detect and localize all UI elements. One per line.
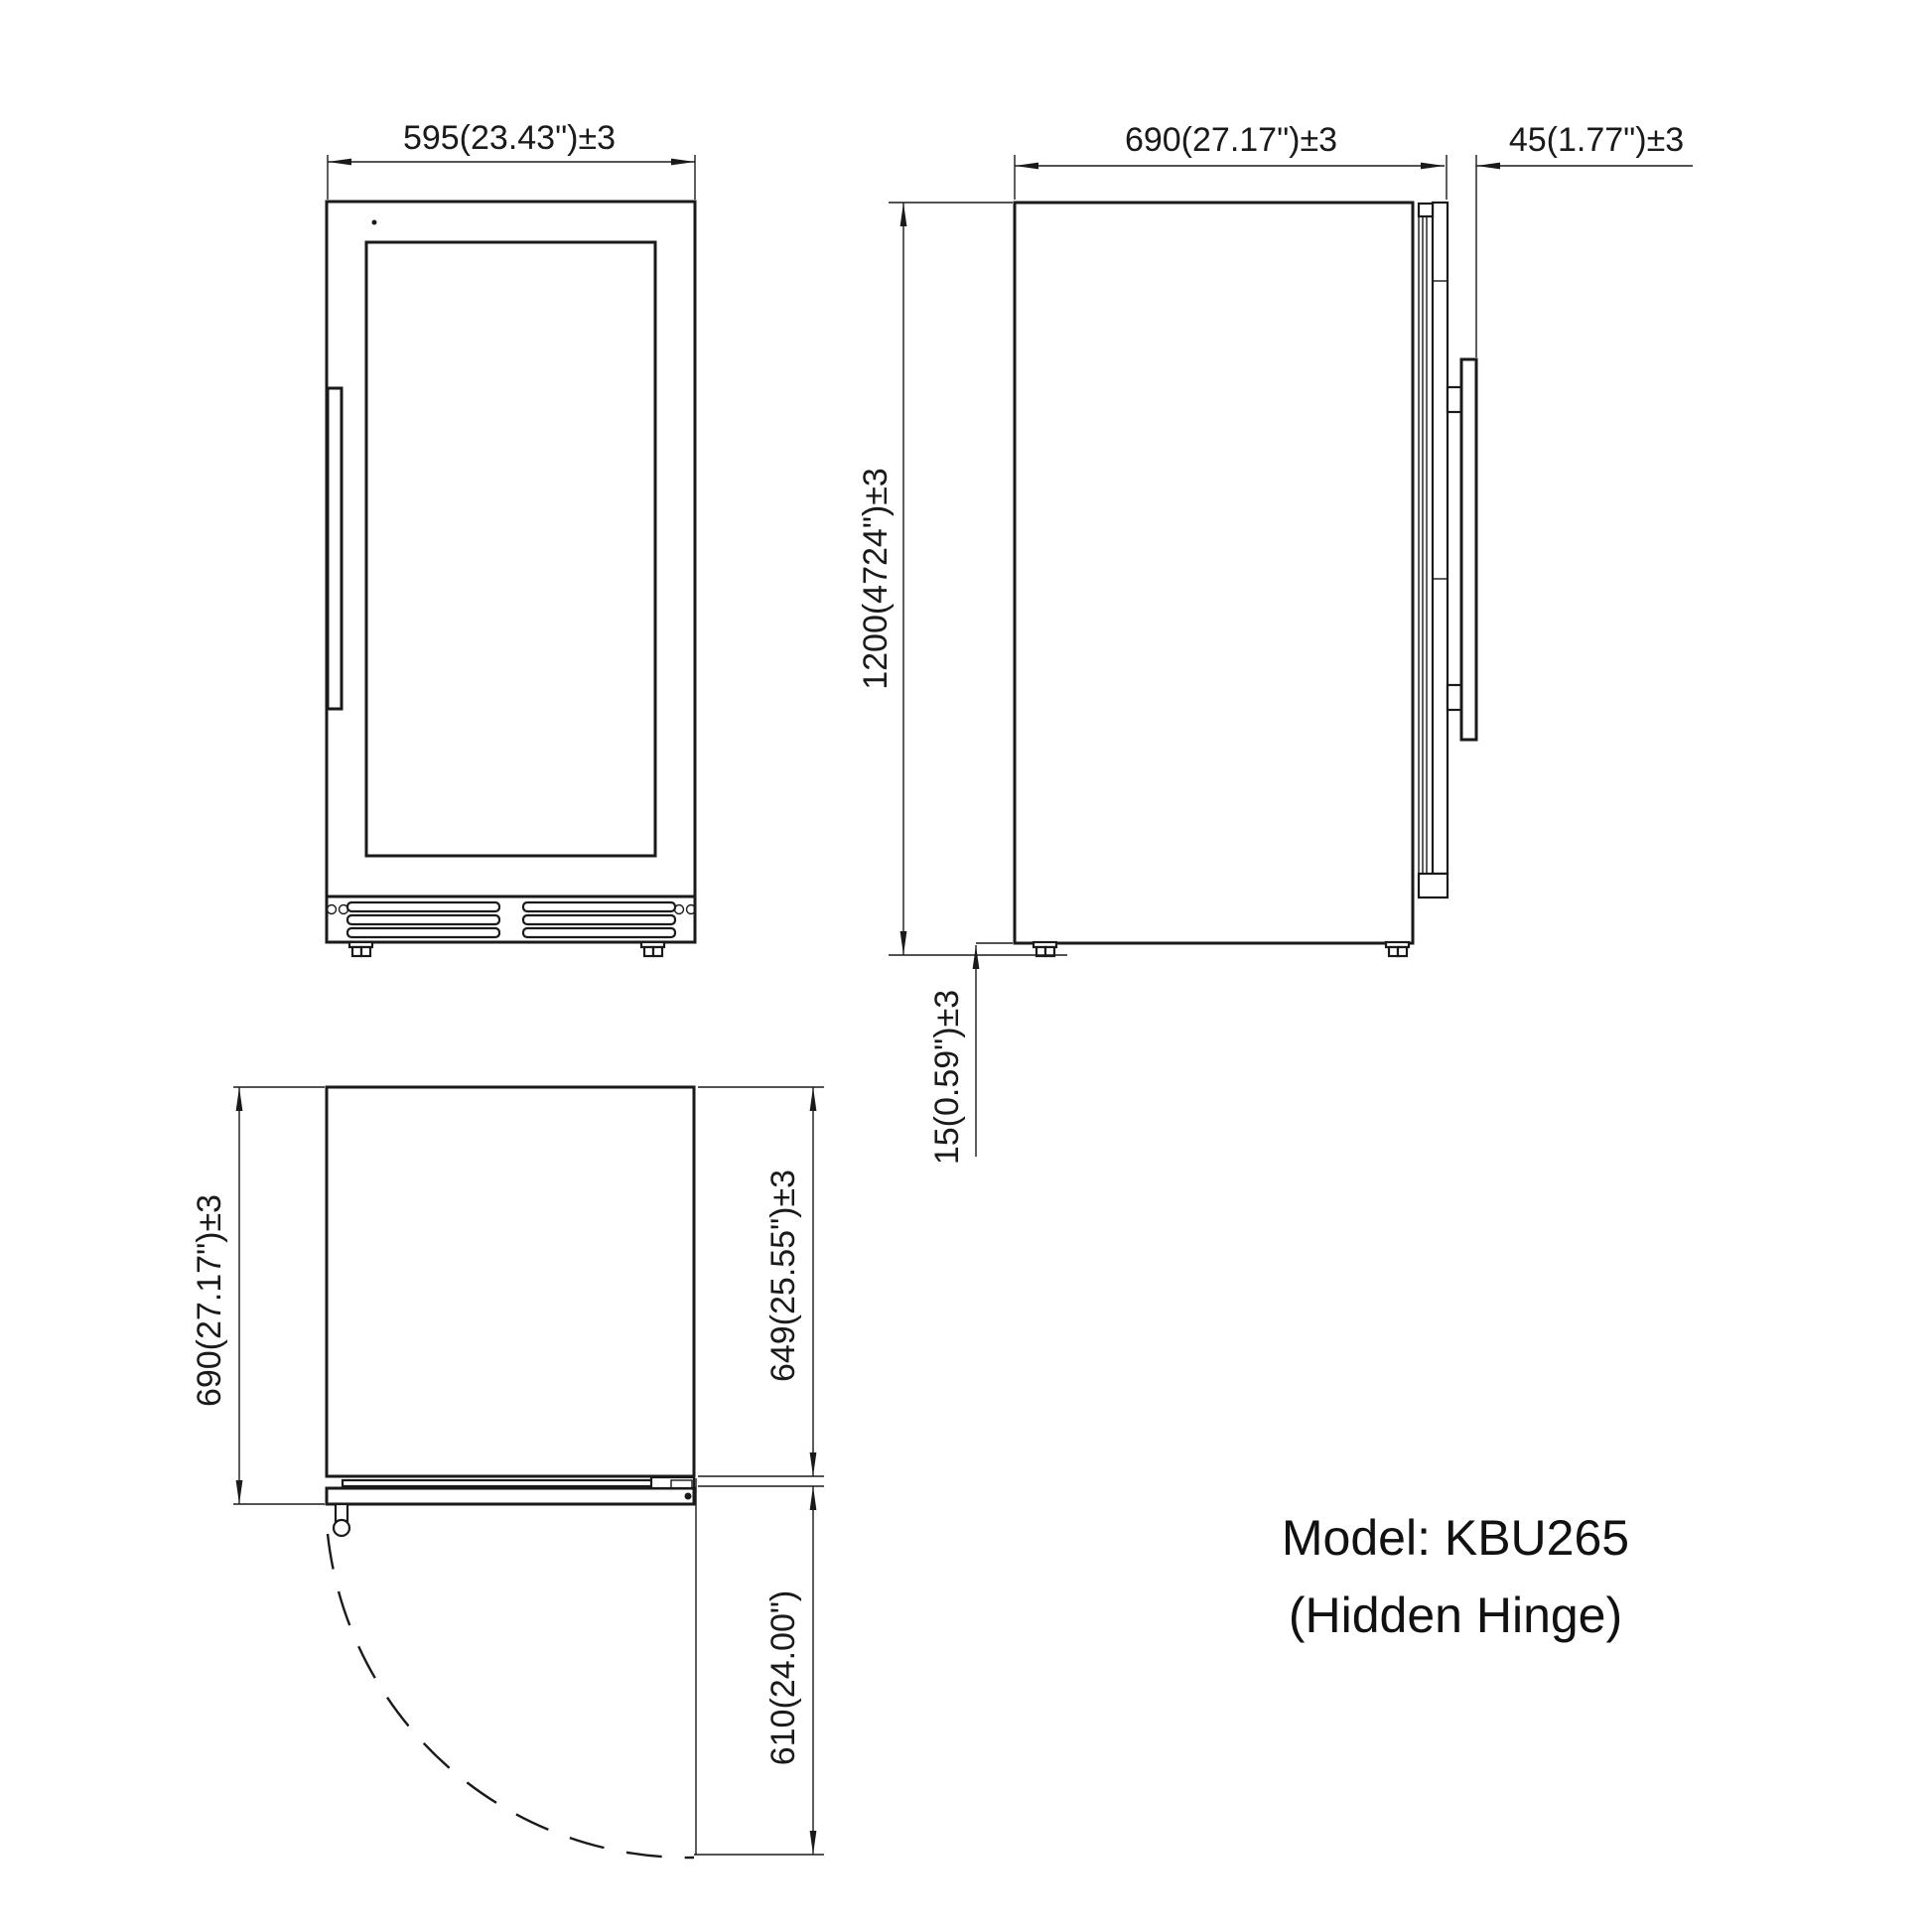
top-door-swing-dimension: 610(24.00") [694, 1478, 824, 1855]
side-handle-bracket-top [1448, 387, 1461, 412]
side-handle-bracket-bottom [1448, 685, 1461, 710]
front-kickplate-screws [328, 905, 696, 914]
side-depth-label: 690(27.17")±3 [1125, 121, 1337, 159]
model-label: Model: KBU265 (Hidden Hinge) [1282, 1510, 1629, 1643]
top-total-depth-dimension: 690(27.17")±3 [191, 1087, 325, 1504]
top-cabinet-outline [327, 1087, 694, 1476]
top-door-swing-label: 610(24.00") [764, 1590, 802, 1766]
side-ground-clearance-dimension: 15(0.59")±3 [928, 943, 1013, 1165]
front-vent-grille [347, 902, 675, 937]
top-handle-stem [336, 1504, 347, 1521]
side-ground-clearance-label: 15(0.59")±3 [928, 990, 966, 1165]
front-width-dimension: 595(23.43")±3 [328, 119, 695, 200]
side-door-gasket-lines [1419, 206, 1427, 874]
side-door-handle [1461, 359, 1476, 740]
top-cabinet-depth-dimension: 649(25.55")±3 [698, 1087, 824, 1476]
top-handle-section [334, 1520, 349, 1536]
model-hinge-text: (Hidden Hinge) [1289, 1587, 1622, 1643]
top-view [327, 1087, 694, 1858]
front-width-label: 595(23.43")±3 [403, 119, 616, 157]
front-door-dot [372, 220, 377, 225]
side-bottom-hidden-hinge [1419, 874, 1448, 897]
side-handle-depth-dimension: 45(1.77")±3 [1476, 121, 1693, 357]
top-door-panel [327, 1488, 694, 1504]
top-door-gasket [343, 1480, 683, 1486]
side-height-label: 1200(4724")±3 [857, 468, 895, 690]
side-top-hidden-hinge [1419, 204, 1433, 216]
front-cabinet-outline [327, 202, 695, 942]
front-feet [349, 942, 664, 956]
side-view [1015, 203, 1476, 956]
top-cabinet-depth-label: 649(25.55")±3 [764, 1170, 802, 1382]
top-total-depth-label: 690(27.17")±3 [191, 1194, 228, 1407]
front-glass-door [366, 242, 655, 856]
model-number-text: Model: KBU265 [1282, 1510, 1629, 1566]
side-handle-depth-label: 45(1.77")±3 [1509, 121, 1684, 159]
front-view [327, 202, 696, 956]
top-hidden-hinge [651, 1477, 694, 1488]
top-hinge-pin [685, 1493, 692, 1500]
technical-drawing: 595(23.43")±3 690( [0, 0, 1932, 1932]
side-depth-dimension: 690(27.17")±3 [1015, 121, 1447, 200]
side-height-dimension: 1200(4724")±3 [857, 203, 1067, 955]
front-door-handle [328, 388, 342, 709]
door-swing-arc [328, 1534, 694, 1858]
side-door-panel [1433, 203, 1448, 874]
side-cabinet-outline [1015, 203, 1413, 943]
dimension-drawing-page: 595(23.43")±3 690( [0, 0, 1932, 1932]
